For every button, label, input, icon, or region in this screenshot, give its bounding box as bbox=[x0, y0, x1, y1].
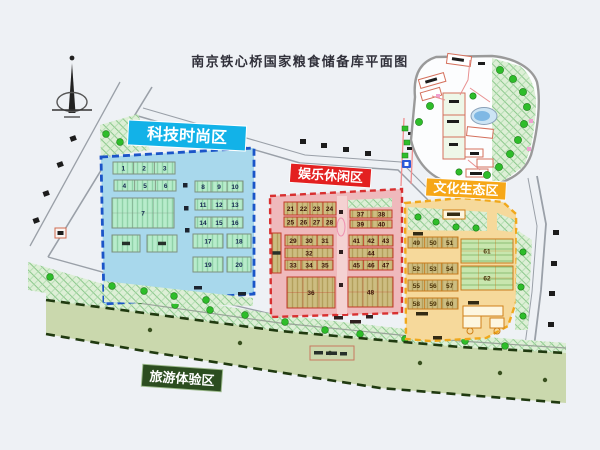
building-number: 11 bbox=[200, 202, 207, 209]
building-number: 26 bbox=[300, 219, 308, 226]
building-number: 51 bbox=[446, 240, 454, 247]
building-number: 3 bbox=[163, 165, 167, 172]
building-number: 29 bbox=[289, 238, 297, 245]
building-number: 10 bbox=[231, 184, 239, 191]
building-number: 35 bbox=[321, 262, 329, 269]
building-number: 31 bbox=[321, 238, 329, 245]
building-number: 58 bbox=[413, 301, 421, 308]
building-number: 23 bbox=[313, 206, 321, 213]
building-number: 43 bbox=[382, 238, 390, 245]
building-number: 5 bbox=[143, 183, 147, 190]
building-number: 53 bbox=[429, 266, 437, 273]
building-number: 19 bbox=[204, 262, 212, 269]
building-number: 39 bbox=[357, 221, 365, 228]
building-number: 14 bbox=[199, 220, 207, 227]
building-number: 49 bbox=[413, 240, 421, 247]
park bbox=[411, 53, 539, 185]
building-number: 44 bbox=[367, 250, 375, 257]
building-number: 2 bbox=[142, 165, 146, 172]
site-plan-canvas: 1234567891011121314151617181920 21222324… bbox=[0, 0, 600, 450]
building-number: 62 bbox=[483, 275, 491, 282]
building-number: 52 bbox=[413, 266, 421, 273]
building-number: 54 bbox=[446, 266, 454, 273]
building-number: 45 bbox=[353, 262, 361, 269]
site-plan-svg: 1234567891011121314151617181920 21222324… bbox=[0, 0, 600, 450]
pond bbox=[471, 108, 497, 125]
building-number: 56 bbox=[429, 283, 437, 290]
leisure-buildings: 2122232425262728293031323334353637383940… bbox=[272, 202, 393, 308]
left-road-marker bbox=[55, 228, 66, 238]
building-number: 60 bbox=[446, 301, 454, 308]
building-number: 40 bbox=[378, 221, 386, 228]
building-number: 25 bbox=[287, 219, 295, 226]
building-number: 9 bbox=[217, 184, 221, 191]
building-number: 33 bbox=[289, 262, 297, 269]
building-number: 32 bbox=[305, 250, 313, 257]
building-number: 38 bbox=[378, 211, 386, 218]
building-number: 30 bbox=[305, 238, 313, 245]
building-number: 16 bbox=[231, 220, 239, 227]
building-number: 48 bbox=[367, 289, 375, 296]
building-number: 6 bbox=[164, 183, 168, 190]
building-number: 47 bbox=[382, 262, 390, 269]
building-number: 61 bbox=[483, 248, 491, 255]
building-number: 34 bbox=[305, 262, 313, 269]
leisure-zone: 2122232425262728293031323334353637383940… bbox=[270, 189, 402, 324]
building-number: 22 bbox=[300, 206, 308, 213]
building-number: 57 bbox=[446, 283, 454, 290]
building-number: 46 bbox=[367, 262, 375, 269]
building-number: 59 bbox=[429, 301, 437, 308]
building-number: 50 bbox=[429, 240, 437, 247]
building-number: 20 bbox=[235, 262, 243, 269]
building-number: 55 bbox=[413, 283, 421, 290]
parking-sign-icon bbox=[402, 160, 411, 168]
building-number: 37 bbox=[357, 211, 365, 218]
building-number: 15 bbox=[215, 220, 223, 227]
building-number: 42 bbox=[367, 238, 375, 245]
building-number: 21 bbox=[287, 206, 295, 213]
plan-title: 南京铁心桥国家粮食储备库平面图 bbox=[191, 54, 409, 69]
building-number: 18 bbox=[235, 238, 243, 245]
building-number: 8 bbox=[201, 184, 205, 191]
building-number: 12 bbox=[215, 202, 223, 209]
building-number: 7 bbox=[141, 210, 145, 217]
building-number: 13 bbox=[231, 202, 239, 209]
culture-zone-label: 文化生态区 bbox=[426, 178, 507, 200]
building-number: 1 bbox=[122, 165, 126, 172]
building-number: 27 bbox=[313, 219, 321, 226]
building-number: 41 bbox=[353, 238, 361, 245]
building-number: 4 bbox=[123, 183, 127, 190]
building-number: 28 bbox=[326, 219, 334, 226]
building-number: 36 bbox=[307, 290, 315, 297]
building-number: 24 bbox=[326, 206, 334, 213]
building-number: 17 bbox=[204, 238, 212, 245]
